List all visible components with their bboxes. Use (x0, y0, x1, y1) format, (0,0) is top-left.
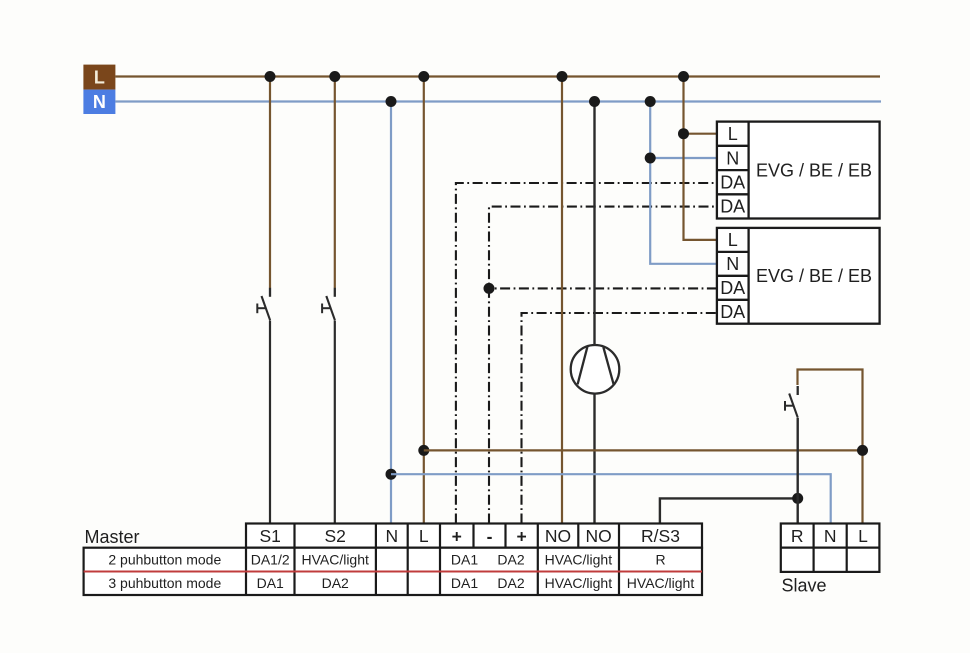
svg-text:L: L (728, 124, 738, 144)
svg-text:HVAC/light: HVAC/light (627, 575, 695, 591)
svg-text:N: N (726, 148, 739, 168)
svg-text:L: L (94, 68, 105, 88)
svg-text:EVG / BE / EB: EVG / BE / EB (756, 266, 872, 286)
svg-text:2 puhbutton mode: 2 puhbutton mode (108, 551, 221, 567)
svg-text:N: N (824, 526, 837, 546)
svg-text:HVAC/light: HVAC/light (545, 575, 613, 591)
svg-text:DA: DA (720, 173, 745, 193)
svg-text:DA1: DA1 (257, 575, 284, 591)
svg-text:DA: DA (720, 197, 745, 217)
svg-text:L: L (728, 230, 738, 250)
svg-text:+: + (516, 526, 526, 546)
svg-text:NO: NO (545, 526, 571, 546)
svg-text:DA2: DA2 (322, 575, 349, 591)
svg-text:Slave: Slave (782, 576, 827, 596)
svg-text:N: N (726, 254, 739, 274)
svg-text:3 puhbutton mode: 3 puhbutton mode (108, 575, 221, 591)
svg-text:EVG / BE / EB: EVG / BE / EB (756, 160, 872, 180)
svg-text:DA2: DA2 (497, 575, 524, 591)
svg-text:DA: DA (720, 302, 745, 322)
svg-text:DA2: DA2 (497, 551, 524, 567)
svg-text:S1: S1 (259, 526, 280, 546)
svg-text:DA: DA (720, 278, 745, 298)
svg-text:+: + (452, 526, 462, 546)
svg-text:S2: S2 (324, 526, 345, 546)
svg-text:-: - (487, 526, 493, 546)
svg-text:DA1/2: DA1/2 (251, 551, 290, 567)
svg-text:L: L (858, 526, 868, 546)
svg-text:N: N (385, 526, 398, 546)
svg-text:DA1: DA1 (451, 575, 478, 591)
svg-text:Master: Master (85, 527, 140, 547)
svg-text:NO: NO (585, 526, 611, 546)
svg-text:N: N (93, 92, 106, 112)
svg-text:R: R (791, 526, 804, 546)
svg-text:R: R (655, 551, 665, 567)
svg-text:HVAC/light: HVAC/light (301, 551, 369, 567)
svg-text:HVAC/light: HVAC/light (545, 551, 613, 567)
svg-text:L: L (419, 526, 429, 546)
svg-text:R/S3: R/S3 (641, 526, 680, 546)
svg-text:DA1: DA1 (451, 551, 478, 567)
